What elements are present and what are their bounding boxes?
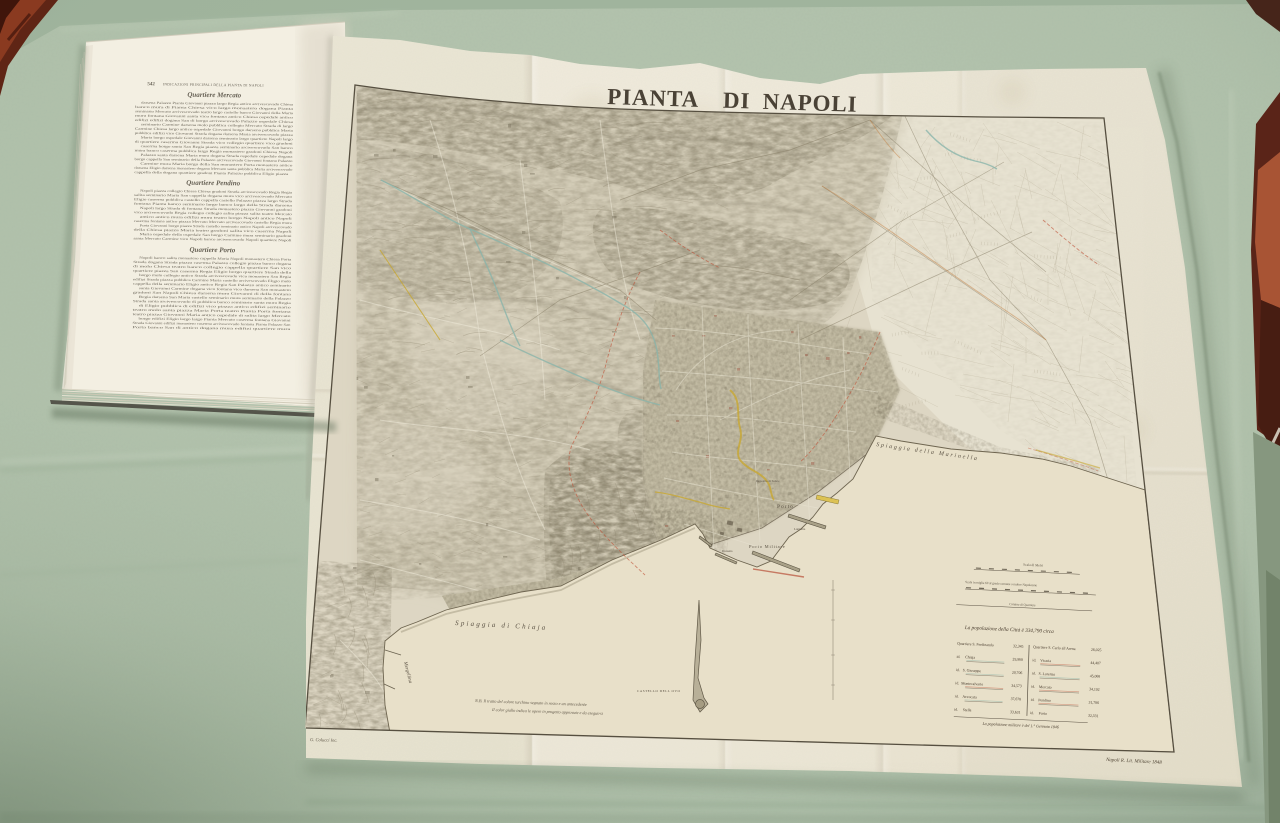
svg-text:542: 542: [147, 82, 155, 87]
svg-text:G. Colucci Inc.: G. Colucci Inc.: [310, 737, 338, 743]
svg-text:id. Vicaria: id. Vicaria: [1032, 658, 1051, 663]
svg-text:id. Chiaja: id. Chiaja: [956, 655, 975, 660]
svg-text:Quartiere Mercato: Quartiere Mercato: [187, 91, 241, 100]
svg-text:Quartiere Pendino: Quartiere Pendino: [186, 179, 240, 188]
svg-text:Deposito di Salute: Deposito di Salute: [756, 479, 780, 483]
svg-text:id. Stella: id. Stella: [954, 708, 972, 713]
svg-text:CASTELLO DELL OVO: CASTELLO DELL OVO: [637, 689, 680, 693]
svg-text:id. Porto: id. Porto: [1030, 711, 1047, 716]
svg-text:Darsena: Darsena: [722, 549, 733, 553]
svg-text:Lanterna: Lanterna: [794, 527, 806, 531]
svg-text:Porto Militare: Porto Militare: [749, 544, 786, 549]
svg-text:Quartiere Porto: Quartiere Porto: [189, 246, 235, 255]
svg-text:Porto: Porto: [777, 504, 794, 510]
